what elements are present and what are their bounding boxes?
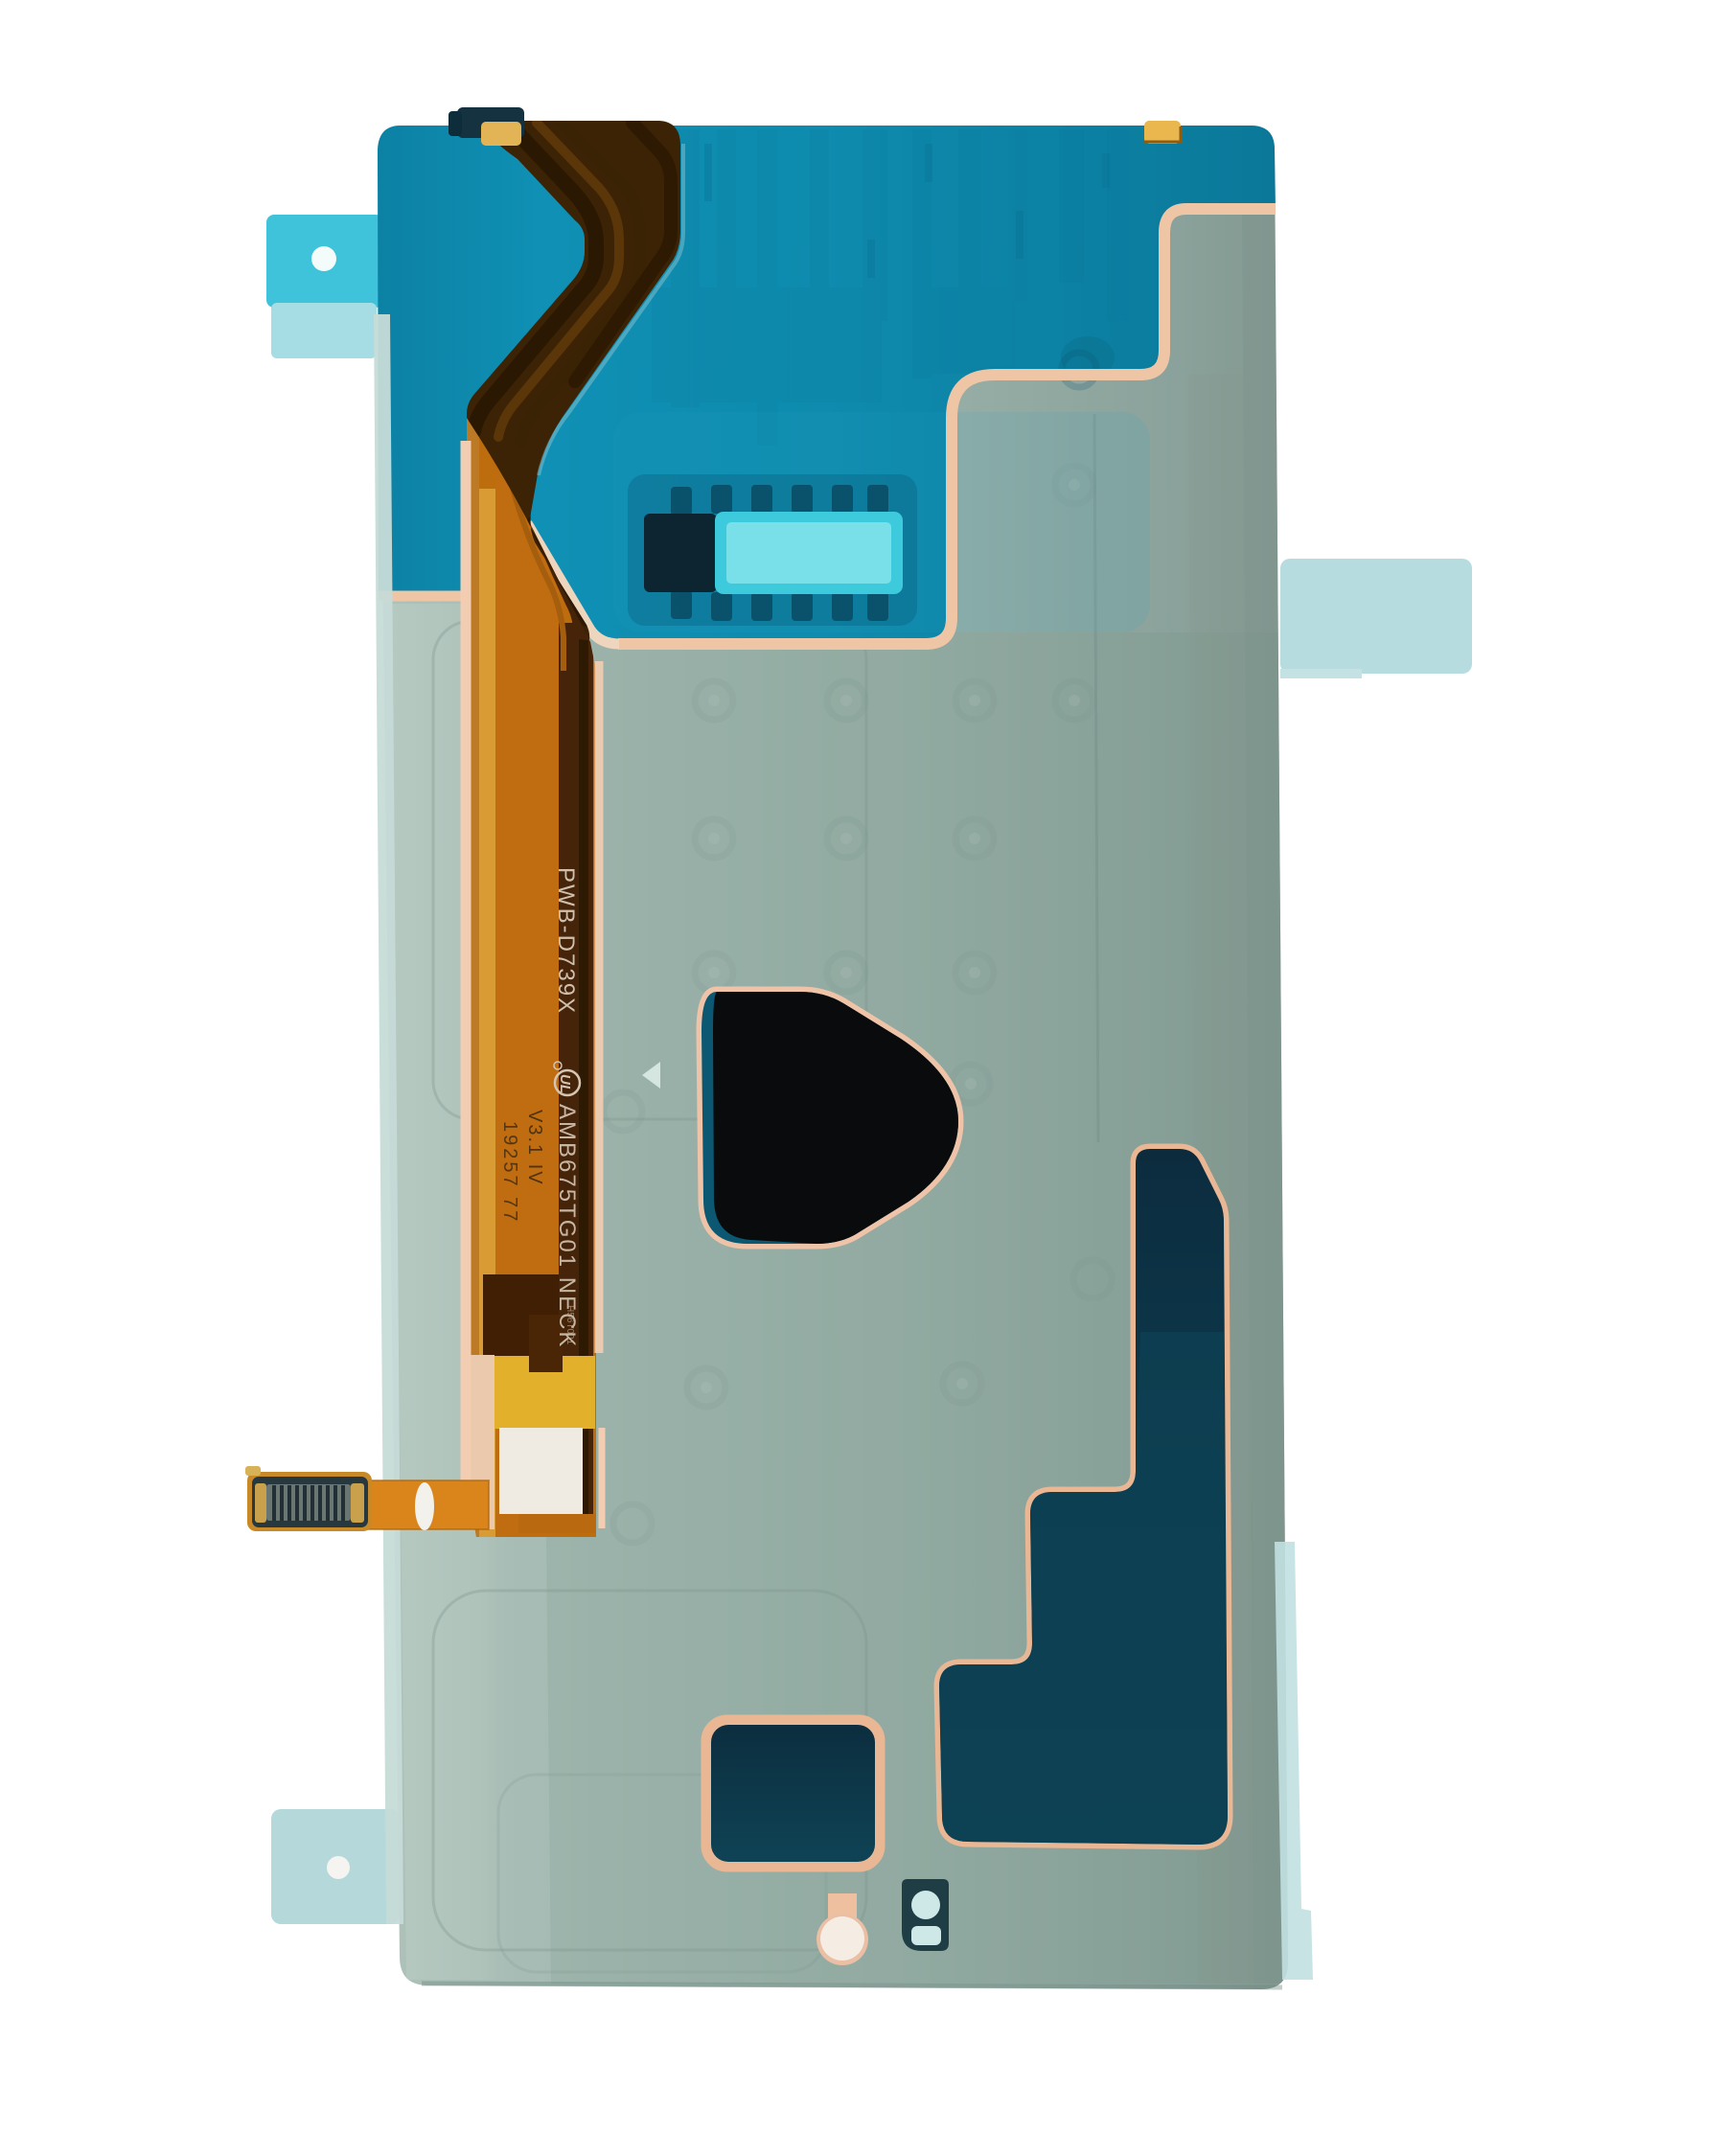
svg-text:UL: UL: [557, 1074, 573, 1093]
svg-text:19257 77: 19257 77: [499, 1121, 520, 1224]
svg-text:PWB-D739X: PWB-D739X: [553, 867, 579, 1015]
svg-text:V3.1 IV: V3.1 IV: [524, 1110, 545, 1186]
svg-text:H56T001: H56T001: [564, 1305, 575, 1345]
